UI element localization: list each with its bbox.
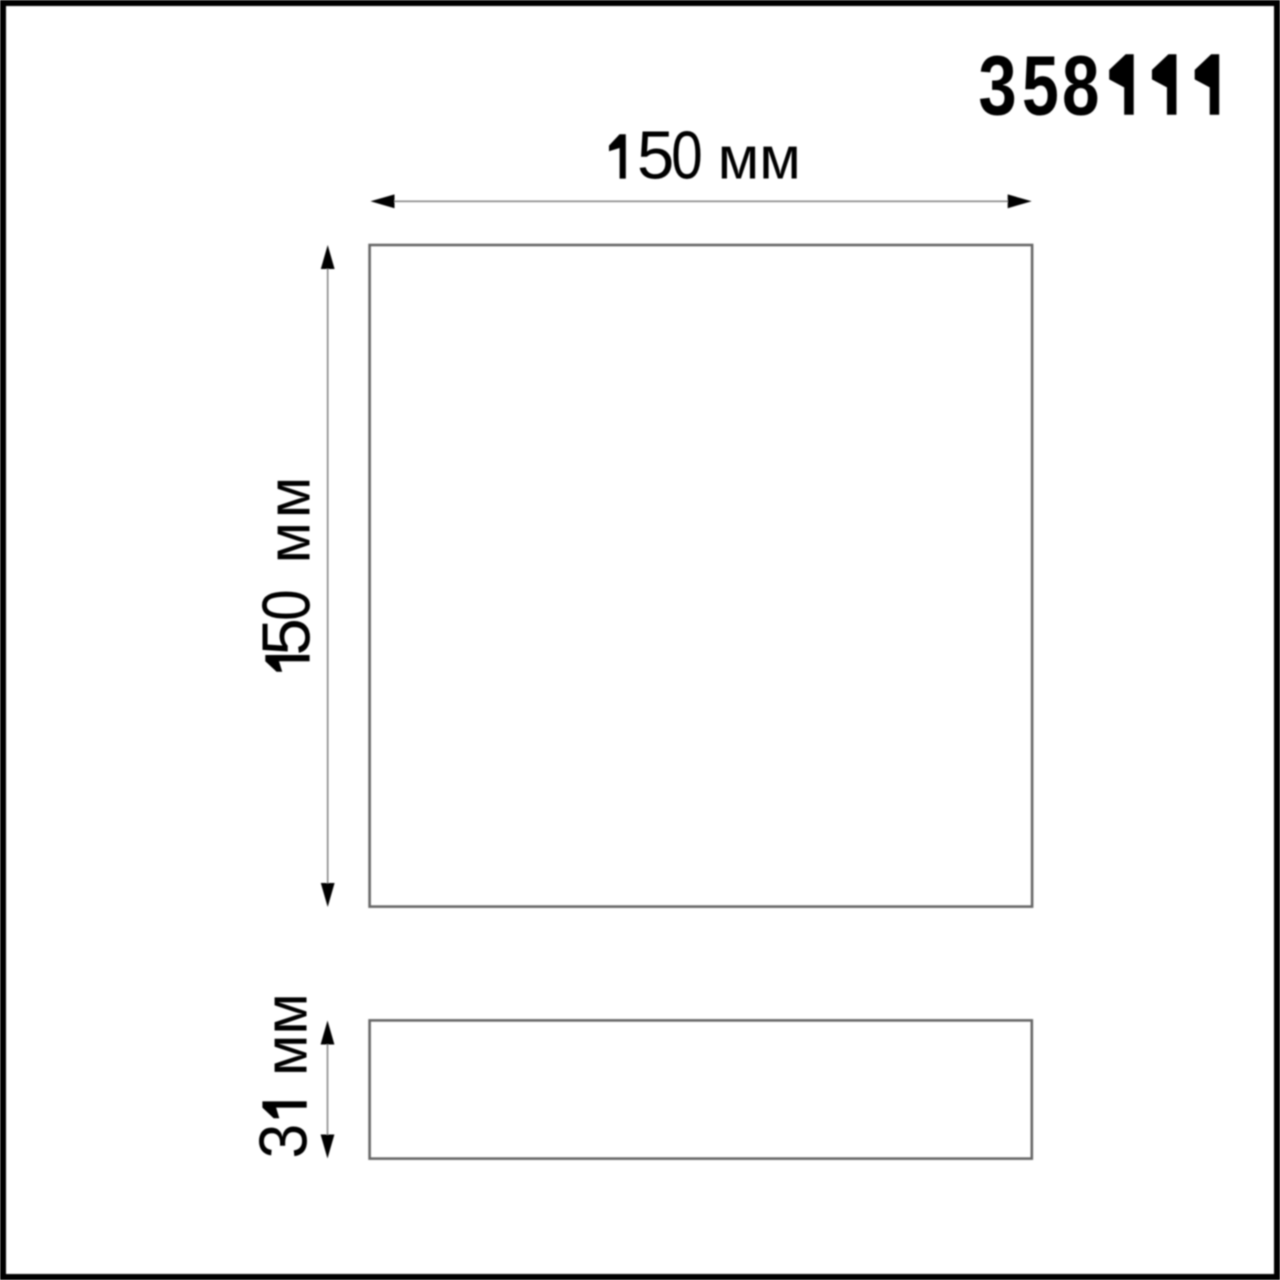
- svg-text:5: 5: [1022, 39, 1059, 133]
- svg-text:8: 8: [1062, 39, 1099, 133]
- svg-text:3: 3: [978, 39, 1016, 133]
